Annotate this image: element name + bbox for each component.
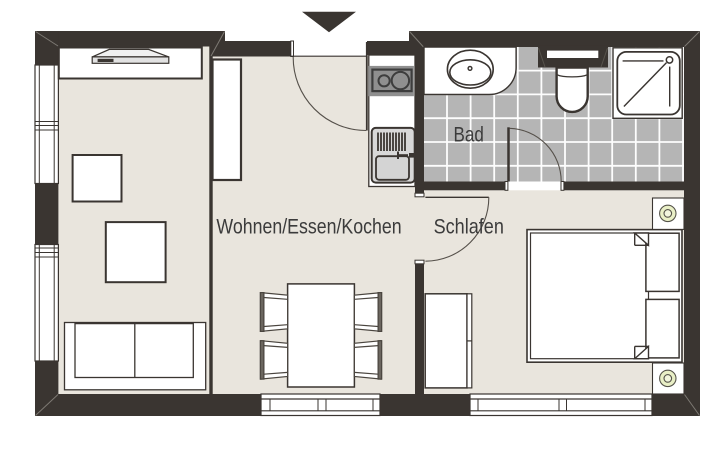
svg-text:Bad: Bad	[454, 122, 484, 146]
svg-text:Wohnen/Essen/Kochen: Wohnen/Essen/Kochen	[216, 214, 401, 238]
svg-text:Schlafen: Schlafen	[434, 214, 504, 238]
